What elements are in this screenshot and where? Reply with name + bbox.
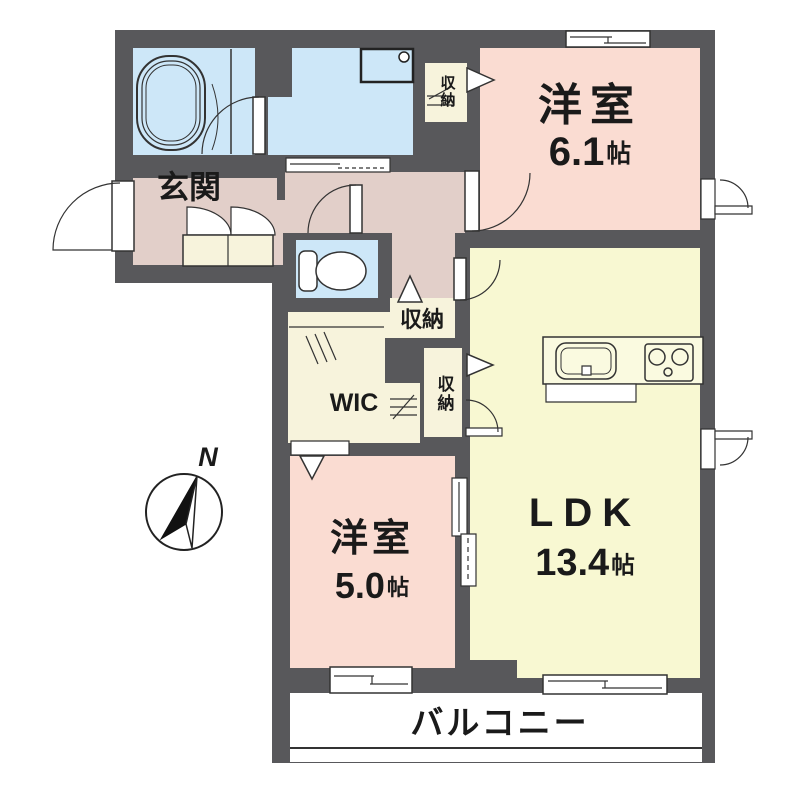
compass [146,474,222,550]
label-closet-upper: 収納 [436,64,458,120]
kitchen-counter [543,337,703,402]
wic-door-opening [291,441,349,455]
ldk-door [454,258,500,300]
floorplan: 玄関 洋室 6.1帖 LDK 13.4帖 洋室 5.0帖 WIC 収納 収納 収… [0,0,800,800]
toilet-fixture [299,251,366,291]
closet-ldk-text: 収納 [432,375,457,413]
label-closet-ldk: 収納 [432,354,456,434]
bedroom-a-size-value: 6.1 [549,130,605,175]
bedroom-a-text: 洋室 [538,69,642,133]
bedroom-b-text: 洋室 [330,507,414,562]
closet-ldk-lower-door [466,400,502,436]
bedroom-b-balcony-window [330,667,412,693]
label-wic: WIC [288,386,420,420]
washing-machine-pan [361,49,413,82]
exterior-door-lower [701,429,752,469]
bedroom-b-size-unit: 帖 [387,570,409,602]
closet-hall-door-triangle [398,276,422,302]
compass-n-text: N [198,442,218,473]
label-bedroom-b: 洋室 [288,510,456,558]
label-compass-n: N [188,442,228,472]
exterior-door-upper [701,179,752,219]
ldk-size-value: 13.4 [535,542,609,585]
label-bedroom-a-size: 6.1帖 [478,128,702,176]
label-ldk-size: 13.4帖 [468,540,702,586]
ldk-text: LDK [529,491,641,536]
washroom-sliding-door [286,158,390,172]
bedroom-b-size-value: 5.0 [335,565,385,607]
bathtub [137,49,231,154]
closet-upper-text: 収納 [437,75,458,109]
ldk-size-unit: 帖 [611,546,635,580]
label-entrance: 玄関 [133,164,245,206]
wic-door-triangle [300,456,324,479]
label-bedroom-a: 洋室 [478,74,702,128]
shoe-cabinet [183,207,275,266]
entrance-text: 玄関 [157,162,221,208]
balcony-text: バルコニー [410,696,589,744]
toilet-door [308,185,362,233]
label-closet-hall: 収納 [390,302,454,334]
wic-text: WIC [330,389,379,418]
bedroom-a-door [465,171,530,231]
closet-ldk-door-triangle [467,354,493,376]
label-ldk: LDK [468,488,702,538]
label-balcony: バルコニー [300,700,700,740]
entrance-door [53,181,134,251]
closet-hall-text: 収納 [400,302,444,334]
label-bedroom-b-size: 5.0帖 [288,564,456,608]
bathroom-door [202,97,265,154]
bedroom-a-size-unit: 帖 [606,134,631,170]
ldk-balcony-window [543,675,667,694]
bedroom-a-window [566,31,650,47]
